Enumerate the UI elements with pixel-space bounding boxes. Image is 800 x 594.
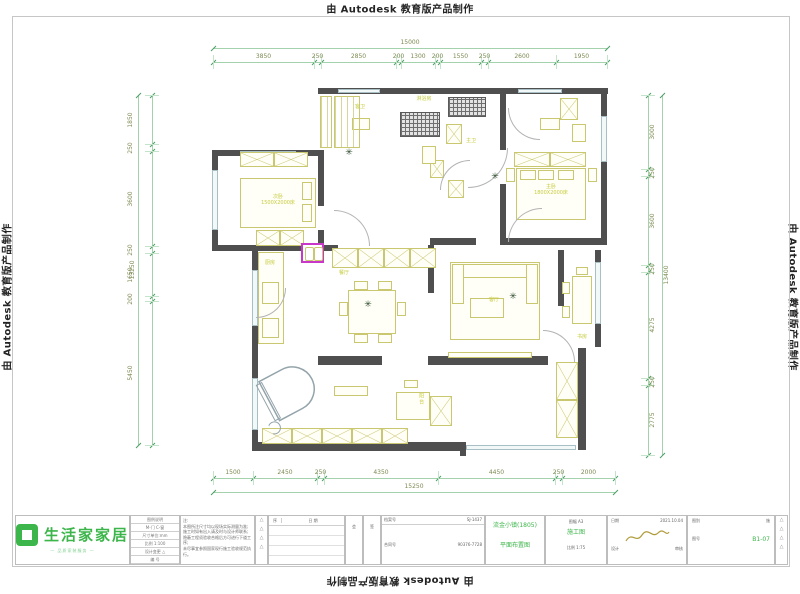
sign-label-a: 会 <box>346 524 362 530</box>
dimension-line <box>152 95 153 445</box>
dimension-value: 1950 <box>566 53 598 61</box>
revision-triangle: △ <box>256 543 267 552</box>
room-label: 次卧1500X2000床 <box>261 194 295 207</box>
furniture <box>572 276 592 324</box>
edge-mark-column: △△△△ <box>775 515 788 565</box>
dimension-value: 250 <box>649 157 657 189</box>
legend-row: 尺寸单位:mm <box>131 532 179 540</box>
revision-triangle: △ <box>776 543 787 552</box>
dimension-total-line <box>213 48 607 49</box>
cabinet-x <box>274 152 308 167</box>
dimension-value: 5450 <box>127 357 135 389</box>
wall-segment <box>578 348 586 450</box>
furniture <box>262 318 279 338</box>
cabinet-x <box>560 98 578 120</box>
tiled-floor-hatch <box>400 112 440 137</box>
room-label: 书房 <box>577 334 587 340</box>
dimension-value: 2850 <box>343 53 375 61</box>
cabinet-x <box>550 152 586 167</box>
wall-segment <box>601 88 607 244</box>
sign-col-a: 会 <box>345 515 363 565</box>
note-line: 未尽事宜参照国家现行施工验收规范执行。 <box>183 546 252 557</box>
furniture <box>572 124 586 142</box>
dimension-value: 3850 <box>248 53 280 61</box>
dimension-extension <box>145 296 159 297</box>
dimension-value: 3600 <box>127 183 135 215</box>
note-line: 施工时如有出入请及时与设计师联系; <box>183 529 252 535</box>
checker-label: 审核 <box>675 546 683 552</box>
dimension-total: 15000 <box>390 39 430 47</box>
dimension-total: 15250 <box>394 483 434 491</box>
dimension-value: 2000 <box>573 469 605 477</box>
cabinet-x <box>556 362 578 400</box>
sign-col-b: 签 <box>363 515 381 565</box>
dimension-extension <box>145 301 159 302</box>
furniture <box>354 334 368 343</box>
dimension-value: 4275 <box>649 309 657 341</box>
dimension-extension <box>145 144 159 145</box>
dimension-extension <box>641 95 655 96</box>
room-label: 客厅 <box>489 297 499 303</box>
stage-cell: 图幅 A3 施工图 比例 1:75 <box>545 515 607 565</box>
drawing-no-label: 图号 <box>692 536 700 544</box>
dimension-extension <box>145 246 159 247</box>
drawing-type-label: 图别 <box>692 518 700 524</box>
furniture <box>378 334 392 343</box>
furniture <box>302 204 312 222</box>
furniture <box>506 168 515 182</box>
cabinet-x <box>352 428 382 444</box>
dimension-value: 3000 <box>649 116 657 148</box>
cabinet-x <box>430 396 452 426</box>
furniture <box>334 386 368 396</box>
dimension-value: 2450 <box>269 469 301 477</box>
room-label: 阳台 <box>418 393 424 405</box>
furniture <box>422 146 436 164</box>
dimension-extension <box>145 445 159 446</box>
room-label: 厨房 <box>265 260 275 266</box>
cabinet-x <box>514 152 550 167</box>
field-label-2: 合同号 <box>384 542 396 548</box>
logo-cell: 生活家家居 — 品质家装服务 — <box>15 515 130 565</box>
sheet-size-label: 图幅 <box>569 519 577 524</box>
dimension-value: 1500 <box>217 469 249 477</box>
revision-triangle: △ <box>776 516 787 525</box>
dimension-extension <box>213 471 214 485</box>
tiled-floor-hatch <box>448 97 486 117</box>
fields-cell: 档案号 SJ-1437 合同号 90376-7728 <box>381 515 485 565</box>
highlighted-appliance <box>301 243 324 263</box>
window <box>601 116 607 162</box>
sign-label-b: 签 <box>364 524 380 530</box>
revision-triangle: △ <box>776 525 787 534</box>
plant-icon: ✳ <box>345 148 353 158</box>
date-signature-cell: 日期 2021.10.04 设计 审核 <box>607 515 687 565</box>
dimension-value: 250 <box>305 469 337 477</box>
drawing-no-value: B1-07 <box>752 536 770 544</box>
brand-name: 生活家家居 <box>44 525 129 546</box>
designer-signature <box>623 528 671 546</box>
scale-label: 比例 <box>567 545 575 550</box>
window <box>518 89 562 93</box>
revision-triangle: △ <box>256 525 267 534</box>
cabinet-x <box>292 428 322 444</box>
plant-icon: ✳ <box>364 300 372 310</box>
revision-triangle: △ <box>776 534 787 543</box>
room-label: 客卫 <box>355 104 365 110</box>
dimension-extension <box>556 55 557 69</box>
cabinet-x <box>446 124 462 144</box>
furniture <box>354 281 368 290</box>
revision-table: 序 日 期 <box>268 515 345 565</box>
sheet-size-value: A3 <box>578 519 583 524</box>
furniture <box>588 168 597 182</box>
furniture <box>302 182 312 200</box>
wall-segment <box>430 238 476 245</box>
furniture <box>558 170 574 180</box>
legend-row: M-门 C-窗 <box>131 524 179 532</box>
wardrobe <box>320 96 332 148</box>
room-label: 主卫 <box>466 138 476 144</box>
furniture <box>404 380 418 388</box>
wall-segment <box>500 184 506 244</box>
field-value-2: 90376-7728 <box>458 542 482 548</box>
dimension-value: 2600 <box>506 53 538 61</box>
drawing-number-cell: 图别 施 图号 B1-07 <box>687 515 775 565</box>
wall-segment <box>318 356 382 365</box>
watermark-bottom: 由 Autodesk 教育版产品制作 <box>326 575 473 590</box>
cabinet-x <box>382 428 408 444</box>
legend-row: 设计变更 △ <box>131 548 179 556</box>
cabinet-x <box>410 248 436 268</box>
field-value-1: SJ-1437 <box>467 517 482 523</box>
project-name: 流金小镇(1805) <box>486 522 544 530</box>
dimension-extension <box>607 55 608 69</box>
dimension-value: 1850 <box>127 104 135 136</box>
furniture <box>538 170 554 180</box>
room-label: 餐厅 <box>339 270 349 276</box>
drawing-type-value: 施 <box>766 518 770 524</box>
cabinet-x <box>358 248 384 268</box>
furniture <box>540 118 560 130</box>
cabinet-x <box>322 428 352 444</box>
dimension-value: 250 <box>302 53 334 61</box>
furniture <box>452 264 464 304</box>
dimension-total: 13250 <box>129 250 137 290</box>
window <box>338 89 380 93</box>
dimension-extension <box>641 455 655 456</box>
revision-triangle: △ <box>256 534 267 543</box>
date-value: 2021.10.04 <box>660 518 683 524</box>
room-label: 淋浴房 <box>416 96 431 102</box>
cabinet-x <box>332 248 358 268</box>
cabinet-x <box>256 230 280 246</box>
revision-no-header: 序 <box>269 518 281 524</box>
furniture <box>348 290 396 334</box>
dimension-total-line <box>138 95 139 445</box>
dimension-extension <box>213 55 214 69</box>
designer-label: 设计 <box>611 546 619 552</box>
dimension-value: 3600 <box>649 205 657 237</box>
legend-row: 比例 1:100 <box>131 540 179 548</box>
dimension-value: 4350 <box>365 469 397 477</box>
wall-segment <box>500 94 506 150</box>
room-label: 主卧1800X2000床 <box>534 184 568 197</box>
wall-segment <box>558 250 564 306</box>
brand-logo-icon <box>16 524 38 546</box>
dimension-line <box>213 62 607 63</box>
furniture <box>378 281 392 290</box>
furniture <box>526 264 538 304</box>
cad-sheet: 由 Autodesk 教育版产品制作 由 Autodesk 教育版产品制作 由 … <box>0 0 800 594</box>
window <box>212 170 218 230</box>
watermark-top: 由 Autodesk 教育版产品制作 <box>326 1 473 16</box>
furniture <box>448 352 532 358</box>
dimension-value: 250 <box>543 469 575 477</box>
dimension-extension <box>145 253 159 254</box>
revision-mark-column: △△△△ <box>255 515 268 565</box>
drawing-title: 平面布置图 <box>486 542 544 550</box>
dimension-value: 2775 <box>649 404 657 436</box>
dimension-value: 250 <box>127 132 135 164</box>
legend-row: 图例说明 <box>131 516 179 524</box>
dimension-extension <box>615 471 616 485</box>
window <box>466 445 576 450</box>
furniture <box>396 392 430 420</box>
dimension-value: 4450 <box>481 469 513 477</box>
dimension-extension <box>438 471 439 485</box>
title-block: 生活家家居 — 品质家装服务 — 图例说明M-门 C-窗尺寸单位:mm比例 1:… <box>15 515 788 565</box>
note-line: 隐蔽工程须验收合格后方可进行下道工序; <box>183 535 252 546</box>
dimension-value: 250 <box>649 366 657 398</box>
plant-icon: ✳ <box>491 172 499 182</box>
dimension-extension <box>145 151 159 152</box>
cabinet-x <box>556 400 578 438</box>
stage-value: 施工图 <box>546 529 606 537</box>
plant-icon: ✳ <box>509 292 517 302</box>
cabinet-x <box>384 248 410 268</box>
furniture <box>576 267 588 275</box>
window <box>595 262 601 324</box>
project-cell: 流金小镇(1805) 平面布置图 <box>485 515 545 565</box>
date-label: 日期 <box>611 518 619 524</box>
furniture <box>520 170 536 180</box>
dimension-extension <box>253 471 254 485</box>
furniture <box>562 306 570 318</box>
furniture <box>397 302 406 316</box>
revision-triangle: △ <box>256 516 267 525</box>
legend-row: 编 号 <box>131 556 179 564</box>
dimension-extension <box>145 95 159 96</box>
wall-segment <box>318 150 324 206</box>
revision-date-header: 日 期 <box>281 518 344 524</box>
legend-cell: 图例说明M-门 C-窗尺寸单位:mm比例 1:100设计变更 △编 号 <box>130 515 180 565</box>
cabinet-x <box>240 152 274 167</box>
dimension-total-line <box>213 492 615 493</box>
scale-value: 1:75 <box>576 545 585 550</box>
dimension-value: 250 <box>469 53 501 61</box>
notes-cell: 注: 本图所注尺寸均以现场实际测量为准;施工时如有出入请及时与设计师联系;隐蔽工… <box>180 515 255 565</box>
dimension-value: 250 <box>649 253 657 285</box>
furniture <box>339 302 348 316</box>
field-label-1: 档案号 <box>384 517 396 523</box>
furniture <box>562 282 570 294</box>
dimension-total: 13400 <box>663 255 671 295</box>
brand-tagline: — 品质家装服务 — <box>16 548 129 554</box>
